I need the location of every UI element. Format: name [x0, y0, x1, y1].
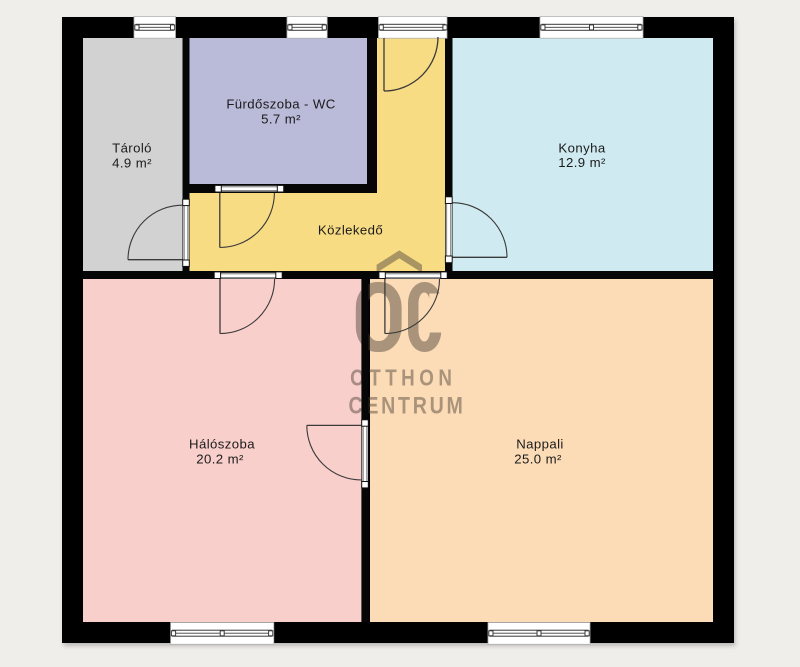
svg-text:5.7 m²: 5.7 m²: [261, 112, 301, 127]
svg-text:Nappali: Nappali: [516, 437, 564, 452]
svg-text:Fürdőszoba - WC: Fürdőszoba - WC: [226, 97, 335, 112]
svg-text:12.9 m²: 12.9 m²: [558, 155, 606, 170]
svg-text:Konyha: Konyha: [558, 141, 605, 156]
svg-text:Hálószoba: Hálószoba: [189, 437, 255, 452]
svg-text:25.0 m²: 25.0 m²: [514, 451, 562, 466]
svg-text:20.2 m²: 20.2 m²: [196, 452, 244, 467]
svg-text:Közlekedő: Közlekedő: [318, 223, 383, 238]
svg-text:4.9 m²: 4.9 m²: [112, 156, 152, 171]
svg-text:Tároló: Tároló: [112, 141, 152, 156]
